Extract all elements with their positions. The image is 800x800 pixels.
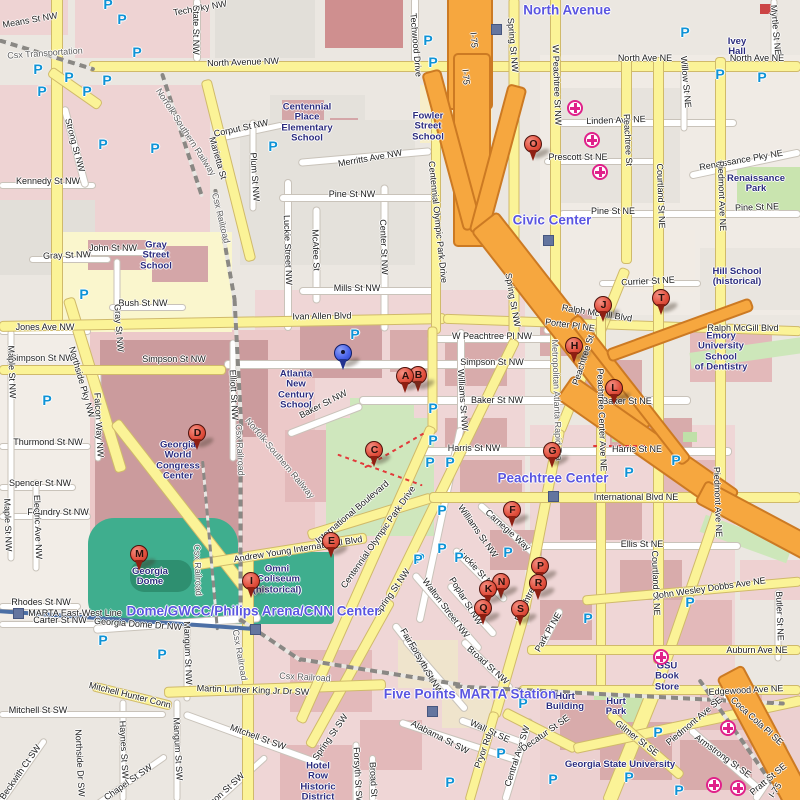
marker-part [570, 352, 578, 363]
map-marker-j[interactable]: J [594, 296, 613, 323]
street-label: Csx Railroad [192, 544, 204, 596]
marker-part [479, 614, 487, 625]
parking-icon[interactable]: P [37, 83, 46, 99]
street-label: Baker St NW [471, 395, 523, 405]
parking-icon[interactable]: P [454, 549, 463, 565]
parking-icon[interactable]: P [82, 83, 91, 99]
marker-part [529, 150, 537, 161]
parking-icon[interactable]: P [583, 610, 592, 626]
parking-icon[interactable]: P [653, 724, 662, 740]
street-label: Jones Ave NW [16, 322, 75, 332]
place-label: Hill School(historical) [712, 267, 761, 288]
parking-icon[interactable]: P [715, 66, 724, 82]
street-label: Linden Ave NE [586, 114, 646, 126]
parking-icon[interactable]: P [428, 54, 437, 70]
street-label: Simpson St NW [142, 354, 206, 364]
marker-letter: A [396, 370, 415, 382]
marker-part [327, 547, 335, 558]
street-label: Simpson St NW [460, 357, 524, 367]
map-marker-m[interactable]: M [130, 545, 149, 572]
parking-icon[interactable]: P [437, 540, 446, 556]
street-label: Simpson St NW [10, 353, 74, 363]
marker-part [534, 589, 542, 600]
street-label: Bush St NW [118, 298, 167, 308]
place-label: IveyHall [728, 37, 747, 58]
map-marker-t[interactable]: T [652, 289, 671, 316]
map-area [215, 0, 315, 58]
poi-label: Dome/GWCC/Philips Arena/CNN Center [126, 604, 379, 619]
map-marker-d[interactable]: D [188, 424, 207, 451]
marker-part [610, 394, 618, 405]
marker-part [657, 304, 665, 315]
poi-label: Peachtree Center [497, 471, 608, 486]
place-label: GrayStreetSchool [140, 241, 172, 272]
parking-icon[interactable]: P [685, 594, 694, 610]
parking-icon[interactable]: P [445, 774, 454, 790]
hospital-icon [653, 649, 669, 665]
street-label: W Peachtree Pl NW [452, 331, 532, 341]
marker-dot [341, 350, 345, 354]
street-label: Mangum St SW [171, 717, 184, 780]
street-label: Gray St NW [43, 249, 91, 261]
hospital-icon [567, 100, 583, 116]
hospital-icon [706, 777, 722, 793]
parking-icon[interactable]: P [98, 632, 107, 648]
poi-label: Civic Center [513, 213, 592, 228]
marker-letter: H [565, 340, 584, 352]
map-marker-blue[interactable] [334, 344, 353, 371]
marta-station-icon[interactable] [543, 235, 554, 246]
marker-letter: R [529, 577, 548, 589]
map-marker-l[interactable]: L [605, 379, 624, 406]
marker-letter: K [479, 583, 498, 595]
street-label: North Ave NE [618, 53, 672, 63]
street-label: Nelson St SW [198, 771, 246, 800]
marker-part [135, 560, 143, 571]
map-area [683, 432, 697, 442]
place-label: AtlantaNewCenturySchool [278, 370, 314, 411]
street-label: Pine St NE [735, 201, 779, 213]
parking-icon[interactable]: P [624, 464, 633, 480]
parking-icon[interactable]: P [496, 745, 505, 761]
street-label: McAfee St [310, 229, 321, 271]
marta-station-icon[interactable] [250, 624, 261, 635]
marker-letter: P [531, 560, 550, 572]
marker-letter: Q [474, 602, 493, 614]
marta-station-icon[interactable] [427, 706, 438, 717]
street-label: Northside Dr SW [73, 729, 87, 797]
parking-icon[interactable]: P [428, 400, 437, 416]
marker-letter: I [242, 575, 261, 587]
parking-icon[interactable]: P [33, 61, 42, 77]
marta-station-icon[interactable] [491, 24, 502, 35]
hospital-icon [720, 720, 736, 736]
marker-part [339, 359, 347, 370]
marker-letter: D [188, 427, 207, 439]
street-label: Maple St NW [6, 345, 18, 398]
parking-icon[interactable]: P [503, 544, 512, 560]
marker-part [508, 516, 516, 527]
place-label: RenaissancePark [727, 174, 785, 195]
street-label: I-75 [468, 32, 479, 48]
street-label: Mitchell St SW [9, 705, 68, 715]
parking-icon[interactable]: P [64, 69, 73, 85]
map-marker-c[interactable]: C [365, 441, 384, 468]
parking-icon[interactable]: P [150, 140, 159, 156]
parking-icon[interactable]: P [437, 502, 446, 518]
parking-icon[interactable]: P [79, 286, 88, 302]
map-marker-e[interactable]: E [322, 532, 341, 559]
road-segment [90, 62, 800, 71]
parking-icon[interactable]: P [268, 138, 277, 154]
marker-part [516, 615, 524, 626]
marker-letter: J [594, 299, 613, 311]
map-canvas[interactable]: Means St NWCsx TransportationTech Pky NW… [0, 0, 800, 800]
street-label: Centennial Olympic Park Drive [427, 161, 450, 284]
street-label: Rhodes St NW [11, 597, 71, 607]
marker-letter: F [503, 504, 522, 516]
marker-part [599, 311, 607, 322]
street-label: Harris St NE [612, 444, 662, 454]
marker-letter: L [605, 382, 624, 394]
parking-icon[interactable]: P [624, 769, 633, 785]
parking-icon[interactable]: P [423, 32, 432, 48]
marker-letter: O [524, 138, 543, 150]
street-label: Thurmond St NW [13, 437, 83, 447]
parking-icon[interactable]: P [428, 432, 437, 448]
parking-icon[interactable]: P [98, 136, 107, 152]
parking-icon[interactable]: P [42, 392, 51, 408]
street-label: Pine St NW [329, 189, 376, 199]
marker-part [370, 456, 378, 467]
parking-icon[interactable]: P [674, 782, 683, 798]
marker-part [193, 439, 201, 450]
place-label: EmoryUniversitySchoolof Dentistry [695, 332, 748, 373]
map-marker-q[interactable]: Q [474, 599, 493, 626]
poi-label: North Avenue [523, 3, 611, 18]
marker-letter: E [322, 535, 341, 547]
place-label: CentennialPlaceElementarySchool [281, 103, 332, 144]
parking-icon[interactable]: P [671, 452, 680, 468]
parking-icon[interactable]: P [680, 24, 689, 40]
parking-icon[interactable]: P [132, 44, 141, 60]
street-label: John St NW [89, 243, 137, 253]
place-label: GSUBookStore [655, 662, 679, 693]
street-label: International Blvd NE [594, 492, 679, 502]
map-marker-f[interactable]: F [503, 501, 522, 528]
parking-icon[interactable]: P [445, 454, 454, 470]
map-area [325, 0, 403, 48]
street-label: Mangum St NW [182, 621, 194, 685]
street-label: Butler St NE [774, 591, 786, 641]
map-marker-i[interactable]: I [242, 572, 261, 599]
street-label: Ellis St NE [621, 539, 664, 549]
marker-letter: M [130, 548, 149, 560]
street-label: Maple St NW [2, 498, 14, 551]
marker-letter: G [543, 445, 562, 457]
street-label: Beckwith Ct SW [0, 743, 43, 800]
map-marker-g[interactable]: G [543, 442, 562, 469]
place-label: FowlerStreetSchool [412, 112, 444, 143]
parking-icon[interactable]: P [757, 69, 766, 85]
poi-label: Five Points MARTA Station [384, 687, 557, 702]
marta-station-icon[interactable] [548, 491, 559, 502]
street-label: Center St NW [378, 219, 390, 275]
street-label: Carter St NW [33, 615, 87, 625]
map-marker-s[interactable]: S [511, 600, 530, 627]
street-label: Ivan Allen Blvd [292, 310, 351, 321]
marker-letter: T [652, 292, 671, 304]
hospital-icon [730, 780, 746, 796]
marker-part [401, 382, 409, 393]
marker-part [548, 457, 556, 468]
place-label: HotelRowHistoricDistrict [300, 762, 335, 800]
parking-icon[interactable]: P [117, 11, 126, 27]
marta-station-icon[interactable] [13, 608, 24, 619]
hospital-icon [592, 164, 608, 180]
street-label: Prescott St NE [548, 152, 607, 162]
street-label: Mills St NW [334, 283, 381, 293]
street-label: I-75 [460, 69, 471, 85]
street-label: Spencer St NW [9, 478, 71, 488]
map-marker-a[interactable]: A [396, 367, 415, 394]
street-label: Haynes St SW [117, 721, 130, 780]
parking-icon[interactable]: P [103, 0, 112, 12]
road-segment [0, 366, 225, 374]
parking-icon[interactable]: P [425, 454, 434, 470]
marker-letter: S [511, 603, 530, 615]
street-label: Harris St NW [448, 443, 501, 453]
place-label: HurtPark [606, 697, 627, 718]
hospital-icon [584, 132, 600, 148]
parking-icon[interactable]: P [157, 646, 166, 662]
street-label: Auburn Ave NE [726, 645, 787, 655]
parking-icon[interactable]: P [548, 771, 557, 787]
parking-icon[interactable]: P [350, 326, 359, 342]
map-marker-o[interactable]: O [524, 135, 543, 162]
parking-icon[interactable]: P [102, 72, 111, 88]
map-marker-h[interactable]: H [565, 337, 584, 364]
parking-icon[interactable]: P [413, 551, 422, 567]
place-label: Georgia State University [565, 760, 675, 770]
marker-letter: C [365, 444, 384, 456]
street-label: Pine St NE [591, 206, 635, 216]
street-label: State St NW [191, 5, 201, 55]
street-label: Mitchell Hunter Conn [88, 680, 172, 710]
marker-part [247, 587, 255, 598]
map-marker-r[interactable]: R [529, 574, 548, 601]
street-label: Kennedy St NW [16, 176, 80, 186]
